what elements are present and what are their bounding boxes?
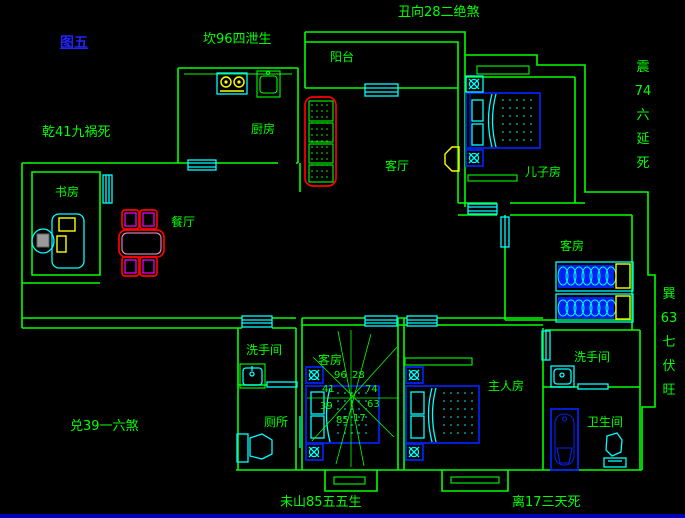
master-nightstand bbox=[406, 367, 423, 383]
kitchen-window bbox=[188, 160, 216, 170]
dining-chair bbox=[122, 210, 139, 229]
son-shelf bbox=[468, 175, 517, 181]
bathtub bbox=[551, 409, 578, 470]
compass-number: 85 bbox=[336, 416, 349, 426]
window-border-bottom bbox=[0, 514, 685, 518]
study-desk bbox=[32, 214, 84, 268]
room-label-balcony: 阳台 bbox=[330, 51, 354, 64]
kitchen-sink bbox=[257, 71, 280, 97]
room-label-son: 儿子房 bbox=[525, 166, 561, 179]
room-label-toilet: 厕所 bbox=[264, 416, 288, 429]
son-nightstand bbox=[466, 150, 483, 166]
sofa-texture bbox=[311, 104, 328, 178]
dining-chair bbox=[122, 257, 139, 276]
bottom-rooms-walls bbox=[238, 318, 640, 470]
stove bbox=[217, 73, 247, 94]
dining-chair bbox=[140, 257, 157, 276]
compass-lines bbox=[307, 330, 398, 467]
sofa bbox=[305, 97, 336, 186]
room-label-kitchen: 厨房 bbox=[251, 123, 275, 136]
annotation-south-right: 离17三天死 bbox=[512, 496, 581, 510]
dining-chair bbox=[140, 210, 157, 229]
room-label-guest-middle: 客房 bbox=[318, 354, 342, 367]
sink-left bbox=[240, 364, 265, 388]
son-bed bbox=[466, 93, 540, 148]
guest-middle-window bbox=[365, 316, 397, 326]
annotation-north: 坎96四泄生 bbox=[203, 33, 272, 47]
toilet-right bbox=[604, 433, 626, 467]
master-closet bbox=[405, 358, 472, 365]
master-nightstand bbox=[406, 444, 423, 460]
compass-number: 39 bbox=[320, 402, 333, 412]
dining-table bbox=[119, 230, 164, 257]
compass-number: 41 bbox=[322, 385, 335, 395]
annotation-top: 丑向28二绝煞 bbox=[398, 6, 480, 20]
guest-middle-nightstand bbox=[306, 444, 323, 460]
annotation-northwest: 乾41九祸死 bbox=[42, 126, 111, 140]
washroom-left-window bbox=[242, 316, 272, 327]
annotation-southeast: 巽 63 七 伏 旺 bbox=[658, 283, 680, 403]
guest-right-bed bbox=[556, 262, 633, 291]
master-window bbox=[407, 316, 437, 326]
room-label-living: 客厅 bbox=[385, 160, 409, 173]
annotation-east: 震 74 六 延 死 bbox=[632, 56, 654, 176]
sink-right bbox=[551, 366, 574, 387]
balcony-window bbox=[365, 84, 398, 96]
room-label-guest-right: 客房 bbox=[560, 240, 584, 253]
guest-middle-nightstand bbox=[306, 367, 323, 383]
living-walls bbox=[300, 55, 465, 207]
room-label-master: 主人房 bbox=[488, 380, 524, 393]
floorplan-drawing bbox=[0, 0, 685, 518]
study-chair-seat bbox=[37, 234, 49, 247]
dining-set bbox=[119, 210, 164, 276]
compass-number: 63 bbox=[367, 400, 380, 410]
study-window bbox=[103, 175, 112, 203]
compass-number: 17 bbox=[353, 414, 366, 424]
balcony-walls bbox=[305, 42, 458, 88]
room-label-washroom-left: 洗手间 bbox=[246, 344, 282, 357]
tv bbox=[445, 147, 459, 171]
compass-number: 96 bbox=[334, 371, 347, 381]
compass-number: 74 bbox=[365, 385, 378, 395]
son-closet bbox=[477, 66, 529, 74]
figure-label: 图五 bbox=[60, 36, 88, 51]
guest-right-window bbox=[501, 217, 509, 247]
annotation-west: 兑39一六煞 bbox=[70, 420, 139, 434]
room-label-bathroom: 卫生间 bbox=[587, 416, 623, 429]
guest-right-bed bbox=[556, 294, 633, 322]
room-label-washroom-right: 洗手间 bbox=[574, 351, 610, 364]
son-room-window bbox=[468, 204, 497, 214]
compass-number: 28 bbox=[352, 371, 365, 381]
bathroom-sliding-door bbox=[578, 384, 608, 389]
annotation-south-left: 未山85五五生 bbox=[280, 496, 362, 510]
room-label-study: 书房 bbox=[55, 186, 79, 199]
floorplan-canvas: 图五 坎96四泄生 丑向28二绝煞 乾41九祸死 震 74 六 延 死 巽 63… bbox=[0, 0, 685, 518]
son-nightstand bbox=[466, 76, 483, 92]
room-label-dining: 餐厅 bbox=[171, 216, 195, 229]
entry-porches bbox=[325, 470, 508, 491]
toilet-sliding-door bbox=[267, 382, 297, 387]
toilet-left bbox=[237, 434, 272, 462]
